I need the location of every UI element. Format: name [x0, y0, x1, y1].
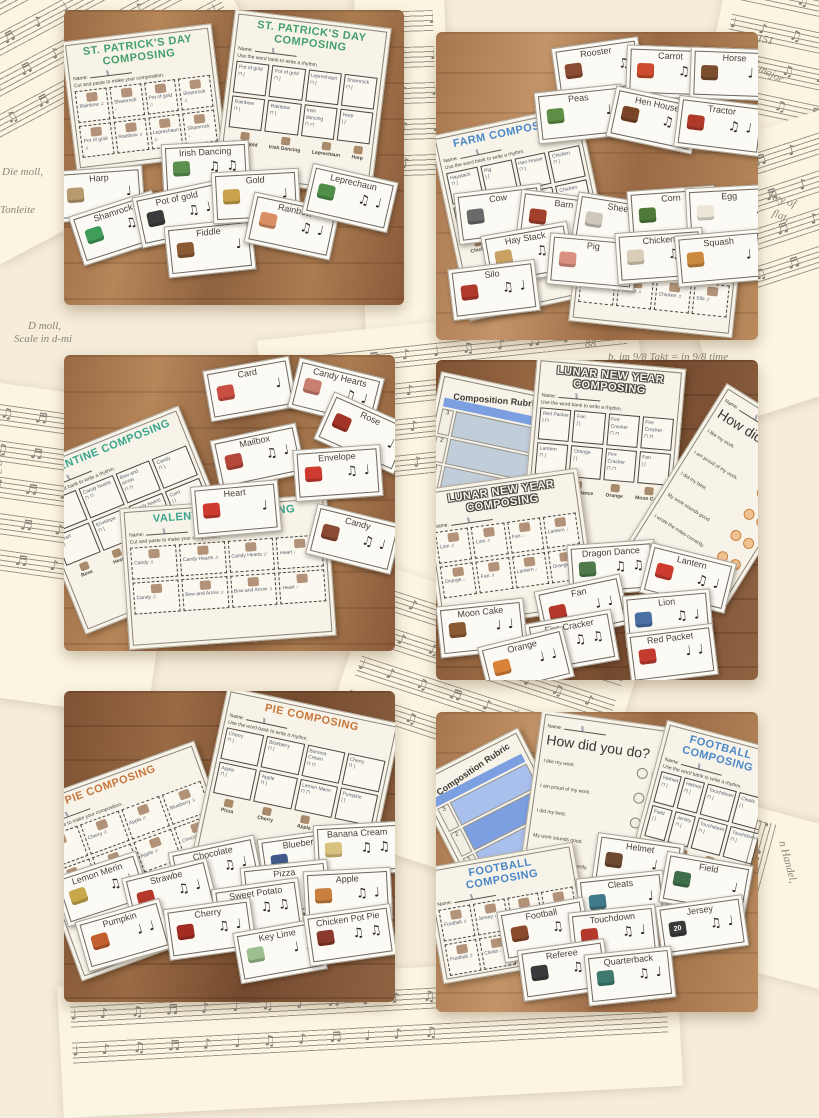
word-bank-item: Irish Dancing — [269, 135, 302, 154]
card-rhythm: ♩ — [647, 889, 656, 905]
rating-circle-icon — [754, 515, 758, 530]
rhythm-cell: Touchdown ⊓ | — [722, 826, 758, 865]
pot-of-gold-icon — [146, 210, 166, 228]
red-packet-icon — [638, 648, 657, 665]
tractor-icon — [686, 114, 705, 131]
pig-icon — [559, 251, 577, 267]
survey-item: I like my work. — [706, 428, 736, 450]
rhythm-cell: Cherry ⊓ | — [341, 753, 385, 792]
card-label: Irish Dancing — [169, 145, 241, 159]
survey-item: I did my best. — [679, 471, 707, 492]
lemon-meringue-pie-icon — [68, 886, 89, 906]
rating-circle-icon — [755, 486, 758, 501]
card-rhythm: ♩ — [274, 375, 284, 391]
rhythm-cell: Lemon Merin ⊓ ⊓ — [294, 778, 338, 817]
card-rhythm: ♩ ♩ — [685, 642, 706, 659]
card-rhythm: ♫ ♩ — [621, 923, 647, 941]
rating-circle-icon — [633, 792, 645, 804]
chicken-icon — [627, 249, 645, 265]
rhythm-cell: Banana Cream ⊓ ⊓ — [301, 744, 345, 783]
name-label: Name: — [436, 522, 449, 530]
rhythm-cell: Blueberry ⊓ | — [261, 735, 305, 774]
cherry-pie-icon — [176, 923, 195, 940]
barn-icon — [528, 208, 547, 225]
photo-lunar-new-year: Composition Rubric 3 2 1 Lunar New Year … — [436, 360, 758, 680]
score-text-fragment: D moll, — [28, 320, 61, 332]
cow-icon — [466, 208, 485, 225]
score-text-fragment: Die moll, — [2, 166, 43, 178]
card-rhythm: ♩ ♩ — [747, 66, 758, 82]
composition-cell: Fan ♫ — [476, 557, 513, 593]
rating-circle-icon — [636, 767, 648, 779]
score-text-fragment: Scale in d-mi — [14, 333, 72, 345]
card-icon — [216, 384, 235, 402]
name-label: Name: — [129, 531, 144, 538]
card-rhythm: ♩ — [755, 202, 758, 217]
football-icon — [510, 925, 529, 943]
word-bank-item: Cherry — [257, 805, 276, 823]
card-rhythm: ♫ ♫ — [351, 922, 383, 941]
card-rhythm: ♫ ♩ — [356, 192, 384, 212]
composition-cell: Heart ♩ — [278, 569, 326, 604]
rhythm-cell: Pumpkin | | — [334, 787, 378, 826]
dragon-dance-icon — [579, 561, 597, 577]
word-bank-item: Rose — [77, 560, 94, 578]
card-rhythm: ♫ ♩ — [727, 119, 754, 137]
composition-cell: Pot of gold ♫ — [144, 79, 179, 115]
egg-icon — [697, 205, 715, 221]
shamrock-icon — [84, 225, 105, 245]
card-rhythm: ♫ ♫ — [614, 558, 645, 575]
heart-icon — [202, 502, 220, 518]
sheep-icon — [584, 211, 603, 228]
rhythm-cell: Chicken ⊓ | — [548, 145, 586, 183]
jersey-icon: 20 — [668, 920, 687, 937]
composition-cell: Pot of gold ♫ — [79, 122, 114, 158]
composition-cell: Shamrock ♫ — [178, 75, 213, 111]
composing-card: Heart♩ — [190, 479, 282, 538]
rhythm-cell: Touchdown ⊓ | — [699, 784, 737, 823]
card-rhythm: ♫ ♩ — [675, 607, 701, 624]
word-bank-item: Orange — [605, 483, 624, 499]
word-bank-item: Harp — [351, 145, 364, 161]
composition-cell: Lion ♫ — [471, 523, 508, 559]
composing-card: Tractor♫ ♩ — [673, 95, 758, 157]
photo-farm: Farm Composing Name: Use the word bank t… — [436, 32, 758, 340]
word-bank-icon — [353, 146, 363, 155]
rhythm-cell: Fan | | — [572, 410, 606, 445]
composition-cell: Bow and Arrow ♫ — [230, 572, 278, 607]
composition-cell: Candy ♫ — [130, 544, 178, 579]
card-rhythm: ♫ ♩ — [346, 463, 372, 480]
card-rhythm: ♩ — [745, 247, 753, 263]
composition-cell: Shamrock ♩ — [182, 110, 217, 146]
card-rhythm: ♩ ♩ — [135, 918, 158, 938]
pumpkin-pie-icon — [90, 932, 110, 951]
card-label: Gold — [219, 173, 291, 187]
word-bank-icon — [610, 484, 620, 493]
leprechaun-icon — [316, 183, 336, 201]
harp-icon — [67, 187, 85, 203]
orange-icon — [492, 658, 512, 677]
card-label: Banana Cream — [321, 826, 393, 840]
candy-icon — [320, 523, 340, 542]
card-label: Horse — [698, 52, 758, 65]
rhythm-cell: Pot of gold ⊓ | — [233, 61, 270, 97]
composing-card: Card♩ — [202, 356, 298, 422]
silo-icon — [460, 284, 479, 301]
card-rhythm: ♩ ♩ — [537, 646, 559, 665]
composition-cell: Lion ♫ — [436, 528, 472, 564]
composition-cell: Orange ♩ — [440, 562, 477, 598]
composition-grid: Candy ♫ Candy Hearts ♫ Candy Hearts ♫ He… — [130, 534, 326, 614]
name-label: Name: — [547, 723, 562, 731]
rhythm-cell: Apple ⊓ | — [254, 770, 298, 809]
card-rhythm: ♫ ♩ — [356, 885, 382, 901]
composing-card: Fiddle♩ — [164, 218, 257, 279]
rhythm-cell: Fire Cracker ⊓ ⊓ — [606, 413, 640, 448]
composition-cell: Silo ♫ — [692, 282, 730, 317]
rhythm-cell: Pot of gold ⊓ | — [269, 65, 306, 101]
corn-icon — [639, 207, 657, 223]
word-bank-icon — [322, 142, 332, 151]
rhythm-cell: Leprechaun ⊓ | — [305, 70, 342, 106]
horse-icon — [701, 65, 719, 81]
composition-cell: Lantern ♩ — [512, 552, 549, 588]
rhythm-cell: Touchdown ⊓ | — [690, 817, 728, 856]
name-label: Name: — [541, 392, 556, 399]
composition-cell: Candy Hearts ♫ — [179, 541, 227, 576]
rhythm-cell: Irish dancing ⊓ ⊓ — [300, 104, 337, 140]
card-rhythm: ♫ ♩ — [360, 533, 388, 554]
composing-card: Chicken Pot Pie♫ ♫ — [303, 903, 395, 967]
irish-dancing-icon — [173, 161, 191, 177]
composition-cell: Candy ♫ — [132, 579, 180, 614]
card-rhythm: ♩ — [261, 498, 269, 514]
moon-cake-icon — [448, 622, 466, 639]
referee-icon — [530, 964, 549, 981]
word-bank-icon — [644, 487, 654, 496]
rhythm-cell: Shamrock ⊓ | — [341, 74, 378, 110]
photo-pie: Pie Composing Name: Cut and paste to mak… — [64, 691, 395, 1002]
composition-cell: Fan ♩ — [507, 518, 544, 554]
rating-circle-icon — [728, 528, 743, 543]
composing-card: Squash♩ — [674, 228, 758, 287]
card-rhythm: ♫ ♫ — [573, 628, 606, 648]
composition-cell: Bow and Arrow ♫ — [181, 576, 229, 611]
composition-cell: Rainbow ♫ — [75, 88, 110, 124]
card-rhythm: ♫ ♩ — [709, 913, 736, 931]
photo-valentine: Valentine Composing Name: Use the word b… — [64, 355, 395, 651]
lantern-icon — [654, 562, 674, 581]
field-icon — [672, 870, 691, 888]
rose-icon — [331, 412, 353, 433]
rhythm-cell: Rainbow ⊓ | — [228, 95, 265, 131]
banana-cream-pie-icon — [325, 842, 343, 858]
fiddle-icon — [176, 242, 194, 259]
photo-football: Composition Rubric 3 2 1 Name: How did y… — [436, 712, 758, 1012]
composition-cell: Rainbow ♫ — [113, 118, 148, 154]
card-label: Egg — [693, 189, 758, 203]
card-rhythm: ♫ ♩ — [186, 199, 213, 219]
apple-pie-icon — [315, 888, 333, 904]
peas-icon — [546, 108, 564, 125]
pin-collage: { "labels": { "name": "Name:", "wordbank… — [0, 0, 819, 1024]
card-rhythm: ♩ ♩ — [495, 617, 516, 634]
composing-card: Horse♩ ♩ — [689, 46, 758, 101]
card-label: Apple — [311, 872, 383, 886]
survey-item: I did my best. — [536, 808, 566, 818]
handwritten-name-scribble — [146, 526, 188, 535]
composition-cell: Football ♫ — [438, 905, 475, 942]
score-text-fragment: 151 — [756, 33, 774, 48]
carrot-icon — [637, 63, 655, 79]
score-text-fragment: Tonleite — [0, 204, 35, 216]
card-rhythm: ♩ — [385, 436, 395, 453]
word-bank-icon — [281, 137, 291, 146]
composition-cell: Lantern ♩ — [543, 512, 580, 548]
rooster-icon — [564, 62, 583, 79]
rhythm-cell: Harp | | — [336, 109, 373, 145]
key-lime-pie-icon — [246, 946, 265, 964]
composing-card: Silo♫ ♩ — [447, 259, 541, 321]
card-rhythm: ♫ ♩ — [264, 442, 291, 462]
chicken-pot-pie-icon — [316, 929, 335, 946]
rhythm-cell: Rainbow ⊓ | — [264, 100, 301, 136]
gold-icon — [223, 189, 241, 205]
candy-hearts-icon — [302, 377, 322, 396]
rhythm-cell: Fire Cracker ⊓ ⊓ — [640, 416, 674, 451]
rhythm-cell: Apple ⊓ | — [213, 761, 257, 800]
card-rhythm: ♫ ♩ — [298, 220, 325, 240]
composition-cell: Shamrock ♩ — [109, 83, 144, 119]
rating-circle-icon — [741, 536, 756, 551]
jersey-number: 20 — [668, 920, 687, 937]
card-rhythm: ♩ — [235, 237, 244, 253]
rhythm-cell: Red Packet | ⊓ — [538, 407, 572, 442]
card-rhythm: ♫ ♫ — [259, 896, 291, 915]
card-rhythm: ♫ ♩ — [501, 278, 528, 296]
rhythm-cell: Cleats | | — [731, 792, 758, 831]
word-bank-item: Leprechaun — [311, 141, 341, 159]
survey-item: I am proud of my work. — [540, 783, 591, 796]
survey-item: I like my work. — [543, 758, 575, 768]
word-bank-item: Pizza — [220, 798, 235, 815]
composing-card: Quarterback♫ ♩ — [584, 946, 677, 1007]
envelope-icon — [305, 466, 323, 482]
rainbow-icon — [258, 211, 278, 229]
card-rhythm: ♫ ♩ — [637, 965, 663, 983]
quarterback-icon — [596, 970, 614, 987]
card-rhythm: ♫ ♫ — [360, 839, 391, 856]
composition-cell: Candy Hearts ♫ — [227, 537, 275, 572]
rating-circle-icon — [742, 507, 757, 522]
rhythm-cell: Cherry ⊓ | — [220, 727, 264, 766]
mailbox-icon — [224, 453, 244, 471]
photo-st-patricks-day: St. Patrick's Day Composing Name: Cut an… — [64, 10, 404, 305]
rhythm-cell: Fire Cracker ⊓ ⊓ — [603, 448, 637, 483]
composing-card: Envelope♫ ♩ — [292, 444, 383, 502]
squash-icon — [686, 251, 704, 267]
word-bank-item: Apple — [296, 814, 313, 832]
composition-cell: Football ♫ — [445, 939, 482, 976]
composing-card: Red Packet♩ ♩ — [625, 623, 719, 680]
score-text-fragment: 1 2 3 4 — [0, 452, 4, 482]
lion-icon — [634, 611, 652, 627]
handwritten-name-scribble — [558, 392, 600, 402]
helmet-icon — [604, 851, 623, 868]
card-rhythm: ♫ ♩ — [176, 877, 204, 898]
hen-house-icon — [620, 105, 640, 123]
